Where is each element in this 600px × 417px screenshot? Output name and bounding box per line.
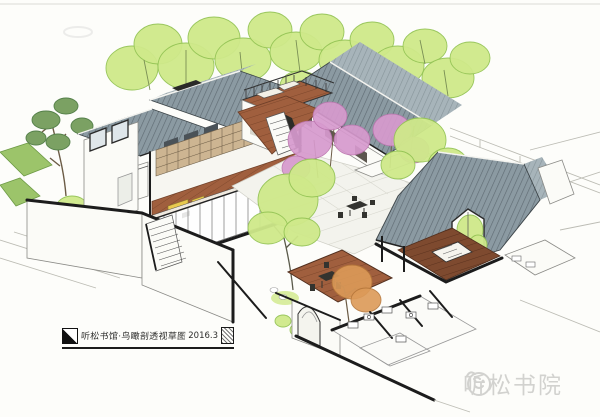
door [118, 173, 132, 206]
deck-chair [310, 284, 315, 291]
studio-logo-icon [62, 328, 78, 344]
drawing-date: 2016.3 [188, 331, 218, 341]
title-strip: 听松书馆·鸟瞰剖透视草图 2016.3 [62, 327, 234, 349]
watermark: 听松书院 [463, 366, 563, 400]
autumn-tree [351, 288, 381, 312]
tingsong-logo-icon [463, 366, 493, 398]
deck-chair [324, 262, 329, 268]
seal-stamp-icon [221, 327, 234, 344]
drawing-title: 听松书馆·鸟瞰剖透视草图 [81, 329, 186, 342]
counter [512, 256, 521, 261]
hand-drawn-aerial-sketch [0, 0, 600, 417]
sketch-page: 听松书馆·鸟瞰剖透视草图 2016.3 听松书院 [0, 0, 600, 417]
garden-rock [270, 288, 278, 293]
counter [526, 262, 535, 267]
